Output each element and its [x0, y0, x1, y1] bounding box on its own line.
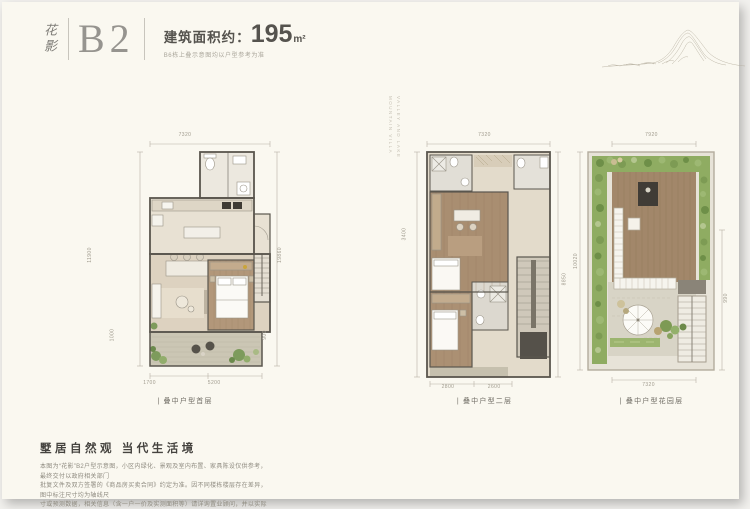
floor-plan-roof-garden-drawing: [574, 130, 729, 396]
disclaimer-line: 寸或预测数据，相关信息（含一户一价及实测面积等）请详询置业顾问，并以实际交付为准…: [40, 501, 268, 509]
header-subtitle: B6栋上叠示意图均以户型参考为准: [164, 50, 306, 59]
watermark-line-2: MOUNTAIN VILLA: [388, 96, 393, 158]
floor-plan-second-floor-drawing: [402, 130, 567, 396]
disclaimer-paragraph: 本图为“花影”B2户型示意图，小区内绿化、景观及室内布置、家具陈设仅供参考，最终…: [40, 463, 268, 509]
floor-plan-second-floor: 7320 3400 8850 2800 2600: [402, 130, 567, 396]
area-value: 195: [251, 22, 293, 46]
plan-caption-roof-garden: | 叠中户型花园层: [574, 396, 729, 406]
footer: 墅居自然观 当代生活境 本图为“花影”B2户型示意图，小区内绿化、景观及室内布置…: [40, 440, 268, 509]
watermark-line-1: VALLEY AND LAKE: [396, 96, 401, 158]
brand-logo: 花影: [40, 23, 59, 55]
dim-label-left: 11900: [87, 248, 93, 264]
fire-pit: [628, 218, 640, 230]
unit-name: B2: [78, 18, 135, 60]
stair-head: [678, 280, 706, 294]
header: 花影 B2 建筑面积约： 195 m² B6栋上叠示意图均以户型参考为准: [40, 18, 306, 60]
area-block: 建筑面积约： 195 m² B6栋上叠示意图均以户型参考为准: [164, 18, 306, 59]
dim-label-bottom-left: 2800: [442, 384, 455, 390]
floor-plan-roof-garden: 7920 10020 990 7320: [574, 130, 729, 396]
dim-label-bottom: 7320: [642, 382, 655, 388]
divider: [68, 18, 69, 60]
floor-plan-first-floor: 7320 11900 19860 1000 900 1700 5200: [90, 130, 280, 396]
planter-bench-horizontal: [614, 278, 676, 289]
footer-heading: 墅居自然观 当代生活境: [40, 440, 268, 456]
floor-plan-first-floor-drawing: [90, 130, 280, 396]
dim-label-bottom-right: 5200: [208, 380, 221, 386]
dim-label-top: 7920: [574, 132, 729, 138]
mountain-illustration: [598, 18, 748, 78]
dim-label-right: 990: [723, 293, 729, 303]
dim-label-side-left: 1000: [109, 329, 115, 342]
dim-label-right: 19860: [277, 247, 283, 263]
dim-label-left: 10020: [573, 253, 579, 269]
outdoor-kitchen: [638, 182, 658, 206]
divider: [144, 18, 145, 60]
brochure-sheet: 花影 B2 建筑面积约： 195 m² B6栋上叠示意图均以户型参考为准: [2, 2, 739, 499]
dim-label-right: 8850: [562, 273, 568, 286]
dim-label-bottom-left: 1700: [143, 380, 156, 386]
dim-label-top: 7320: [90, 132, 280, 138]
disclaimer-line: 本图为“花影”B2户型示意图，小区内绿化、景观及室内布置、家具陈设仅供参考，最终…: [40, 463, 268, 482]
stair-core: [520, 332, 547, 359]
disclaimer-line: 批复文件及双方签署的《商品房买卖合同》约定为准。因不同楼栋楼层存在差异，图中标注…: [40, 482, 268, 501]
entry: [254, 214, 270, 254]
dim-label-left: 3400: [401, 228, 407, 241]
watermark-text: MOUNTAIN VILLA VALLEY AND LAKE: [388, 96, 401, 158]
plan-caption-first-floor: | 叠中户型首层: [90, 396, 280, 406]
area-label: 建筑面积约：: [164, 26, 251, 46]
plan-caption-second-floor: | 叠中户型二层: [402, 396, 567, 406]
deck-strip: [430, 367, 508, 377]
dim-label-top: 7320: [402, 132, 567, 138]
page: 花影 B2 建筑面积约： 195 m² B6栋上叠示意图均以户型参考为准: [0, 0, 750, 509]
dim-label-side-right: 900: [262, 330, 268, 340]
area-unit: m²: [293, 34, 305, 45]
dim-label-bottom-right: 2600: [488, 384, 501, 390]
